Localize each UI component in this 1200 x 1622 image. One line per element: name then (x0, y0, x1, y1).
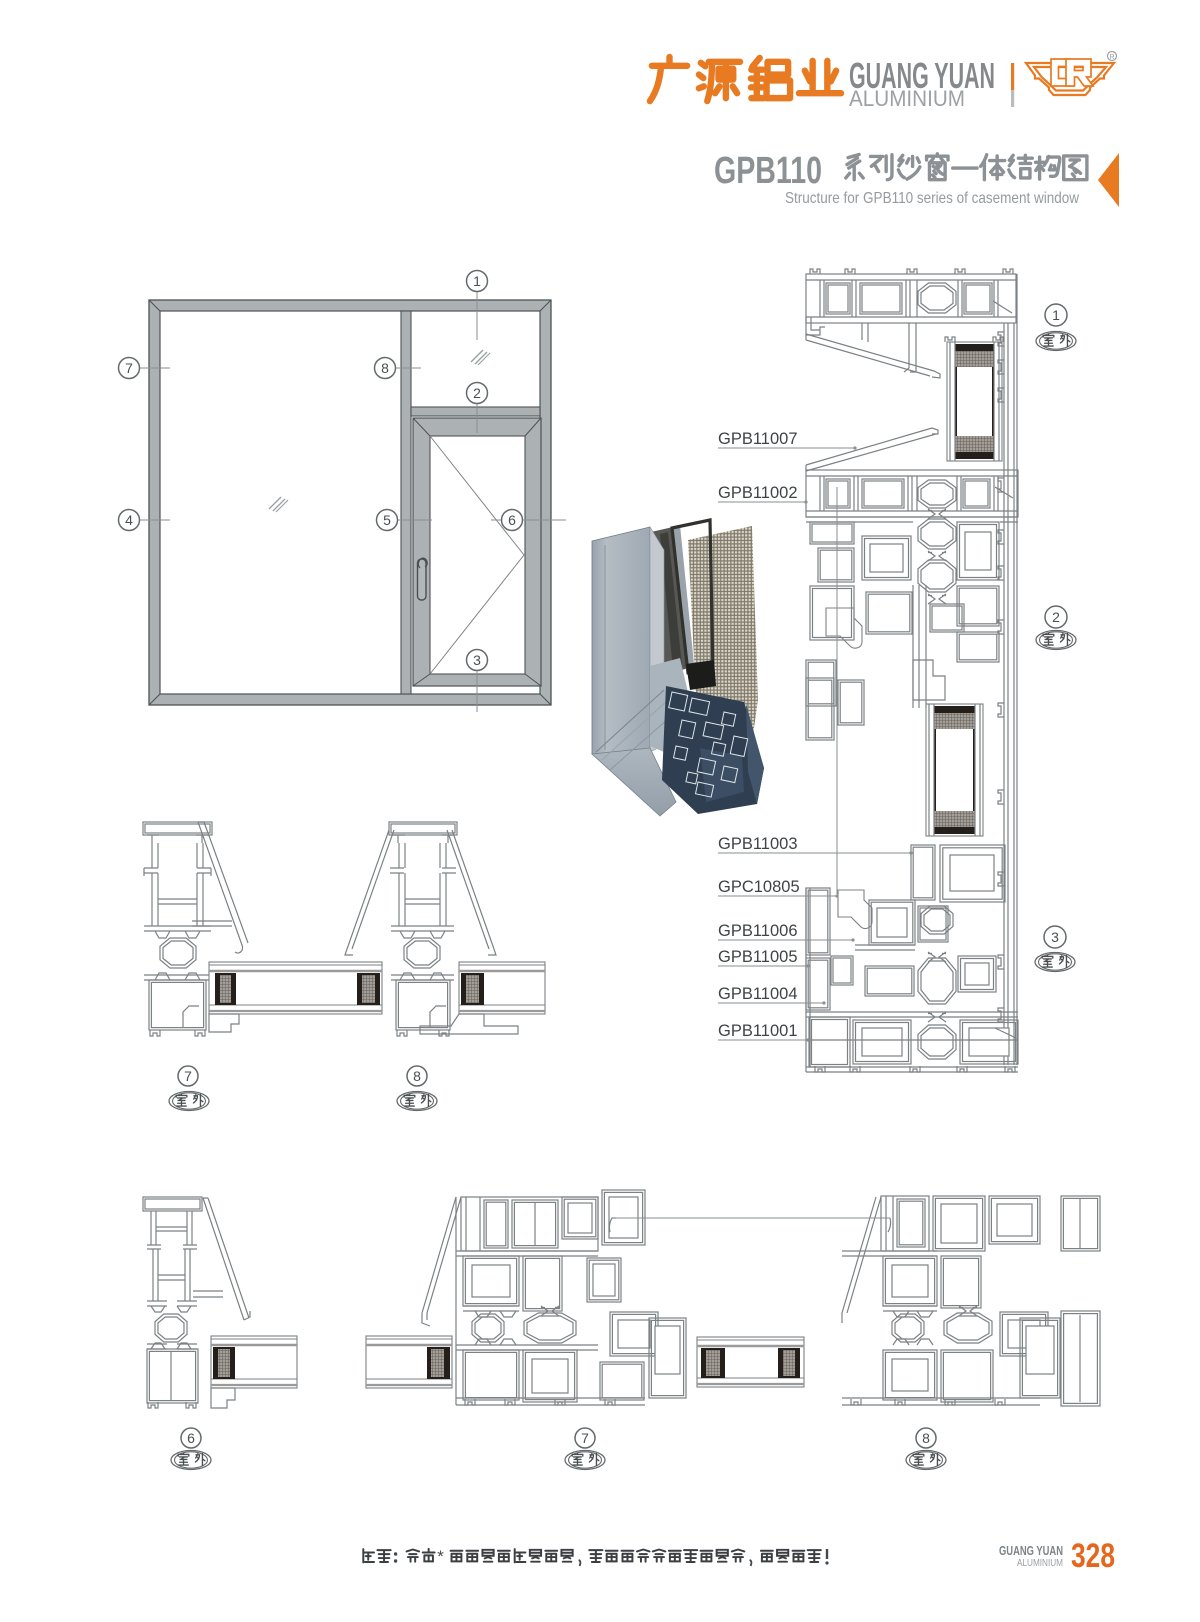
svg-text:GUANG YUAN: GUANG YUAN (999, 1543, 1063, 1558)
svg-text:GPB11004: GPB11004 (718, 985, 798, 1003)
svg-text:GPB11001: GPB11001 (718, 1022, 798, 1040)
svg-text:ALUMINIUM: ALUMINIUM (849, 86, 965, 111)
svg-text:2: 2 (473, 385, 481, 401)
svg-text:GPB11006: GPB11006 (718, 922, 798, 940)
svg-text:1: 1 (473, 273, 481, 289)
svg-text:8: 8 (413, 1068, 421, 1084)
svg-text:7: 7 (125, 360, 133, 376)
svg-text:6: 6 (508, 512, 516, 528)
svg-text:R: R (1109, 54, 1114, 61)
svg-text:1: 1 (1052, 307, 1060, 323)
svg-text:8: 8 (922, 1430, 930, 1446)
svg-text:4: 4 (125, 512, 133, 528)
svg-text:7: 7 (184, 1068, 192, 1084)
svg-text:8: 8 (381, 360, 389, 376)
svg-text:6: 6 (187, 1430, 195, 1446)
svg-text:2: 2 (1052, 609, 1060, 625)
svg-text:GPB11002: GPB11002 (718, 484, 798, 502)
svg-text:GPB11005: GPB11005 (718, 948, 798, 966)
svg-text:Structure for GPB110 series of: Structure for GPB110 series of casement … (785, 190, 1079, 207)
svg-text:328: 328 (1071, 1537, 1115, 1575)
svg-text:GPB11007: GPB11007 (718, 430, 798, 448)
svg-text:3: 3 (473, 652, 481, 668)
svg-text:*: * (437, 1547, 444, 1566)
svg-text:7: 7 (581, 1430, 589, 1446)
svg-text:5: 5 (383, 512, 391, 528)
svg-text:GPB110: GPB110 (714, 150, 822, 192)
svg-text:ALUMINIUM: ALUMINIUM (1017, 1558, 1063, 1569)
svg-text:GPC10805: GPC10805 (718, 878, 800, 896)
svg-text:GPB11003: GPB11003 (718, 835, 798, 853)
svg-text:3: 3 (1051, 929, 1059, 945)
